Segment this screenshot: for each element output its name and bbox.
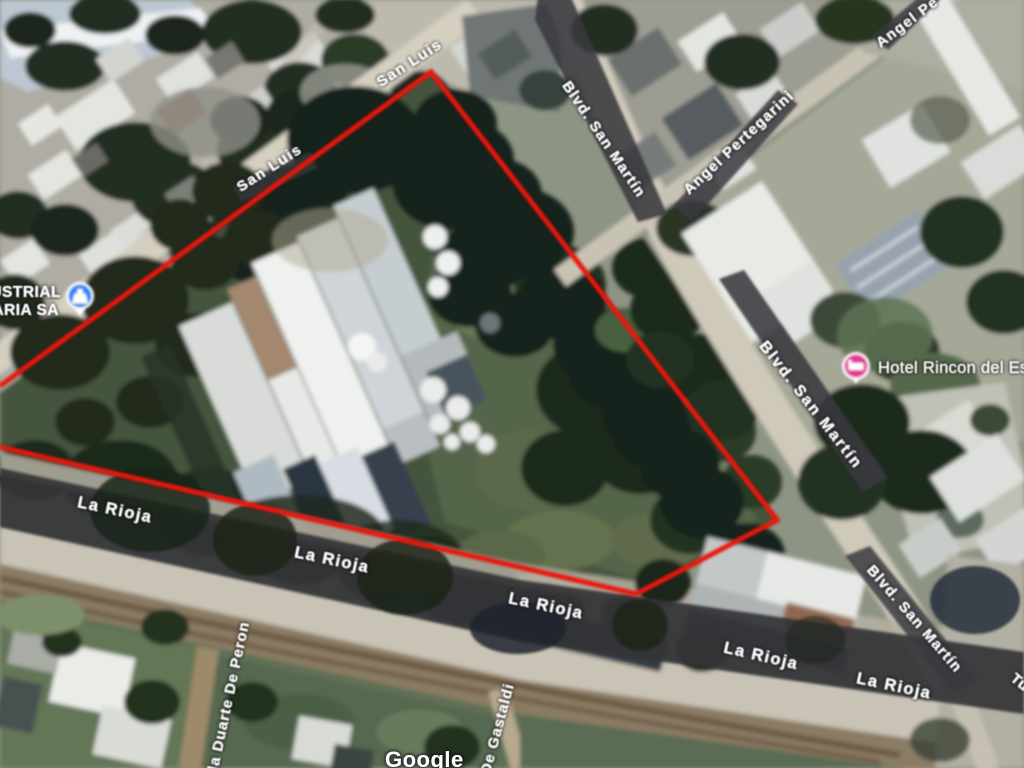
svg-text:Hotel Rincon del Este: Hotel Rincon del Este [878,359,1024,377]
svg-text:ARIA SA: ARIA SA [0,302,59,319]
svg-text:USTRIAL: USTRIAL [0,284,61,301]
svg-text:Google: Google [385,747,464,768]
